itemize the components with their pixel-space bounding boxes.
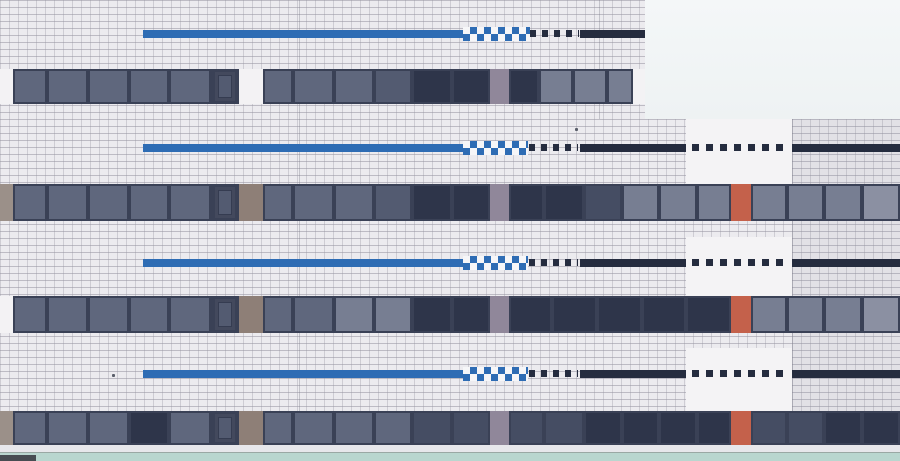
window-pane — [584, 184, 622, 221]
window-pane — [374, 411, 412, 445]
facade-speck — [112, 374, 115, 377]
window-pane — [129, 69, 169, 104]
window-pane — [552, 296, 597, 333]
right-wall-shading — [792, 119, 900, 445]
panel-joint-seam — [299, 0, 300, 445]
window-pane — [169, 296, 211, 333]
window-pane — [509, 184, 544, 221]
smooth-concrete-panel — [686, 237, 792, 296]
window-pane — [88, 296, 129, 333]
window-pane — [47, 184, 88, 221]
window-pane — [47, 296, 88, 333]
ground-teal-strip — [0, 453, 900, 461]
facade-accent-panel-taupe — [239, 296, 263, 333]
window-pane — [544, 411, 584, 445]
stripe-solid-blue — [143, 259, 463, 267]
window-pane — [862, 411, 900, 445]
ground-dark-object — [0, 455, 36, 461]
stripe-checkerboard — [463, 367, 528, 381]
stripe-solid-navy — [792, 144, 900, 152]
stripe-solid-navy — [580, 30, 645, 38]
wall-strip — [0, 69, 13, 104]
window-pane — [787, 184, 824, 221]
window-band — [0, 184, 900, 221]
window-pane — [751, 184, 787, 221]
window-pane — [169, 69, 211, 104]
smooth-concrete-panel — [686, 119, 792, 184]
window-pane — [824, 296, 862, 333]
window-pane — [374, 296, 412, 333]
window-pane — [824, 411, 862, 445]
window-pane — [374, 69, 412, 104]
window-pane — [13, 411, 47, 445]
window-pane — [211, 296, 239, 333]
window-pane — [293, 411, 334, 445]
window-pane — [862, 296, 900, 333]
facade-accent-panel-orange — [731, 411, 751, 445]
window-pane — [659, 184, 697, 221]
window-pane — [263, 184, 293, 221]
window-pane — [47, 411, 88, 445]
stripe-long-dashed — [692, 144, 789, 151]
window-pane — [622, 184, 659, 221]
stripe-checkerboard — [463, 141, 528, 155]
window-pane — [334, 411, 374, 445]
window-pane — [697, 184, 731, 221]
building-facade-photo — [0, 0, 900, 461]
window-pane — [607, 69, 633, 104]
window-pane — [509, 69, 539, 104]
window-pane — [129, 411, 169, 445]
window-pane — [544, 184, 584, 221]
stripe-dashed — [529, 370, 578, 377]
window-pane — [452, 296, 490, 333]
window-pane — [697, 411, 731, 445]
window-pane — [88, 184, 129, 221]
facade-accent-panel-taupe — [239, 411, 263, 445]
window-pane — [787, 296, 824, 333]
window-pane — [412, 296, 452, 333]
facade-accent-panel-mauve — [490, 69, 509, 104]
wall-strip — [633, 69, 645, 104]
sky-region — [645, 0, 900, 119]
window-pane — [751, 296, 787, 333]
smooth-concrete-panel — [686, 348, 792, 412]
window-pane — [412, 184, 452, 221]
window-pane — [452, 411, 490, 445]
window-pane — [88, 411, 129, 445]
window-pane — [211, 69, 239, 104]
window-pane — [263, 69, 293, 104]
window-pane — [862, 184, 900, 221]
window-pane — [169, 184, 211, 221]
window-pane — [334, 296, 374, 333]
window-pane — [787, 411, 824, 445]
stripe-solid-blue — [143, 144, 463, 152]
wall-strip — [0, 296, 13, 333]
window-pane — [293, 296, 334, 333]
window-band — [0, 296, 900, 333]
stripe-solid-navy — [580, 370, 686, 378]
window-pane — [129, 296, 169, 333]
window-pane — [211, 184, 239, 221]
stripe-checkerboard — [463, 256, 528, 270]
panel-joint-seam — [792, 119, 793, 445]
stripe-solid-blue — [143, 370, 463, 378]
stripe-dashed — [529, 144, 578, 151]
window-pane — [597, 296, 642, 333]
window-pane — [824, 184, 862, 221]
window-pane — [374, 184, 412, 221]
window-pane — [686, 296, 731, 333]
stripe-solid-blue — [143, 30, 463, 38]
wall-strip — [0, 184, 13, 221]
window-pane — [293, 69, 334, 104]
window-pane — [13, 69, 47, 104]
stripe-solid-navy — [792, 259, 900, 267]
stripe-solid-navy — [580, 144, 686, 152]
window-pane — [169, 411, 211, 445]
window-pane — [13, 296, 47, 333]
facade-accent-panel-mauve — [490, 296, 509, 333]
window-pane — [263, 296, 293, 333]
window-pane — [622, 411, 659, 445]
facade-accent-panel-whitep — [239, 69, 263, 104]
window-pane — [334, 184, 374, 221]
facade-accent-panel-orange — [731, 296, 751, 333]
window-pane — [293, 184, 334, 221]
window-pane — [539, 69, 573, 104]
window-pane — [452, 69, 490, 104]
window-band — [0, 411, 900, 445]
window-pane — [642, 296, 686, 333]
window-pane — [452, 184, 490, 221]
stripe-long-dashed — [692, 259, 789, 266]
facade-accent-panel-mauve — [490, 184, 509, 221]
facade-accent-panel-orange — [731, 184, 751, 221]
window-pane — [129, 184, 169, 221]
window-pane — [751, 411, 787, 445]
window-band — [0, 69, 645, 104]
window-pane — [573, 69, 607, 104]
facade-speck — [575, 128, 578, 131]
window-pane — [412, 69, 452, 104]
window-pane — [509, 411, 544, 445]
window-pane — [334, 69, 374, 104]
window-pane — [47, 69, 88, 104]
stripe-dashed — [530, 30, 579, 37]
window-pane — [13, 184, 47, 221]
window-pane — [263, 411, 293, 445]
wall-strip — [0, 411, 13, 445]
facade-accent-panel-taupe — [239, 184, 263, 221]
window-pane — [211, 411, 239, 445]
window-pane — [509, 296, 552, 333]
stripe-dashed — [529, 259, 578, 266]
window-pane — [412, 411, 452, 445]
stripe-solid-navy — [792, 370, 900, 378]
stripe-solid-navy — [580, 259, 686, 267]
window-pane — [659, 411, 697, 445]
stripe-checkerboard — [463, 27, 530, 41]
stripe-long-dashed — [692, 370, 789, 377]
facade-accent-panel-mauve — [490, 411, 509, 445]
window-pane — [584, 411, 622, 445]
window-pane — [88, 69, 129, 104]
